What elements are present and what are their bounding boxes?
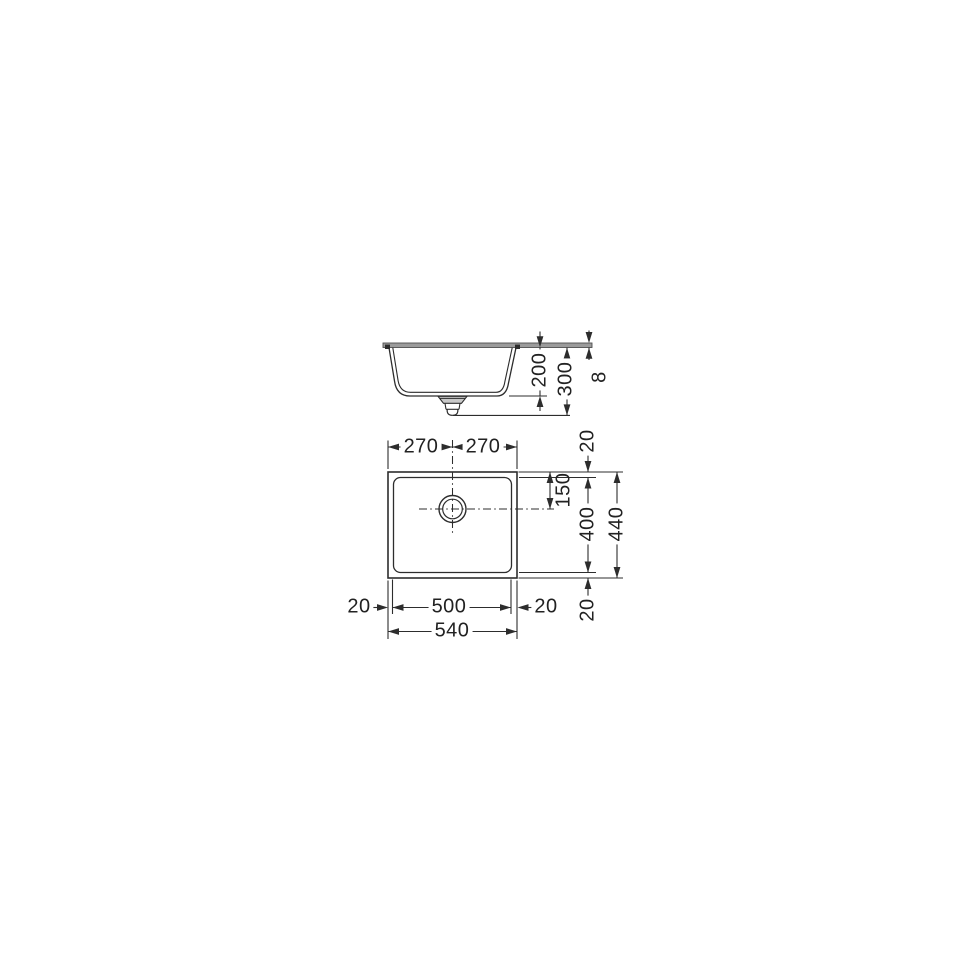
sink-bowl-outer: [389, 348, 516, 396]
countertop-bar: [383, 343, 592, 348]
label-rim-left: 20: [344, 597, 373, 618]
label-half-width-left: 270: [401, 437, 442, 458]
label-overall-width: 540: [432, 621, 473, 642]
drain-outlet: [438, 396, 467, 415]
label-rim-top: 20: [578, 426, 599, 455]
technical-drawing-canvas: 200 300 8 270 270 20 150 400 440 20 20 5…: [0, 0, 970, 971]
label-counter-thickness: 8: [590, 368, 611, 386]
label-rim-bottom: 20: [578, 595, 599, 624]
label-bowl-depth: 200: [530, 350, 551, 391]
label-half-width-right: 270: [463, 437, 504, 458]
sink-bowl-inner: [393, 348, 512, 393]
drawing-linework: [0, 0, 970, 971]
label-overall-length: 440: [607, 504, 628, 545]
label-bowl-width: 500: [429, 597, 470, 618]
label-overall-depth: 300: [556, 359, 577, 400]
label-rim-right: 20: [531, 597, 560, 618]
label-bowl-length: 400: [578, 504, 599, 545]
label-drain-offset: 150: [554, 470, 575, 511]
